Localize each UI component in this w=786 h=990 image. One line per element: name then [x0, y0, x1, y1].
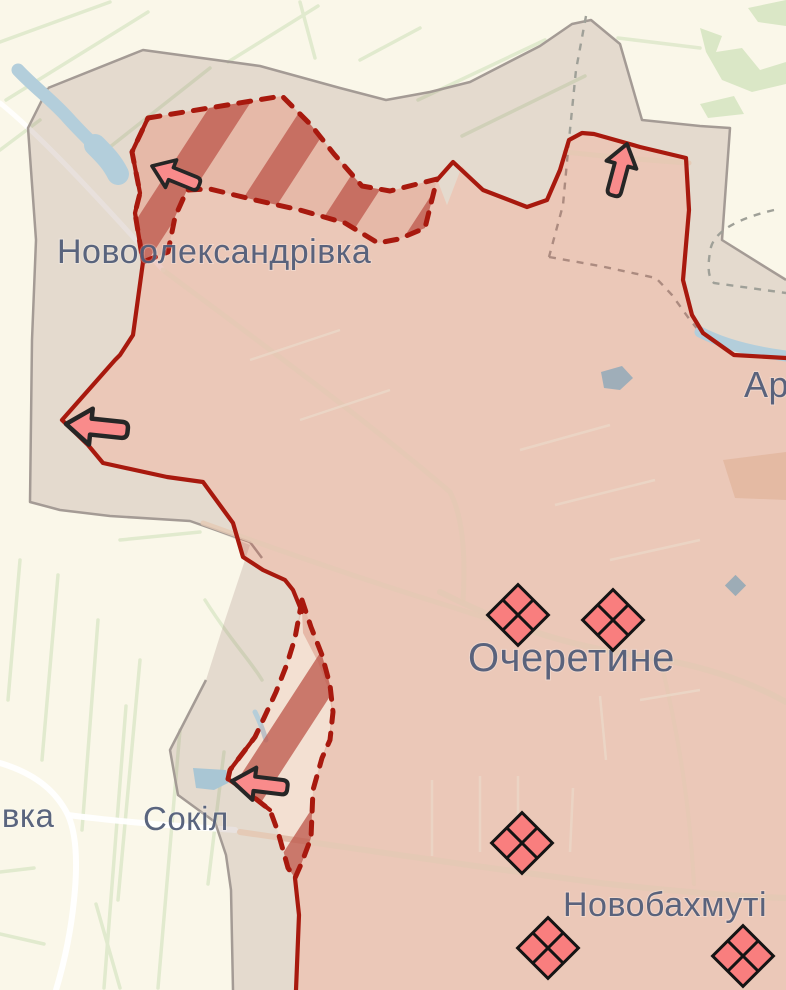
label-sokil: Сокіл	[143, 800, 229, 837]
frontline-map: Новоолександрівка Очеретине Сокіл івка Н…	[0, 0, 786, 990]
label-ivka-partial: івка	[0, 797, 55, 834]
map-viewport[interactable]: Новоолександрівка Очеретине Сокіл івка Н…	[0, 0, 786, 990]
label-ocheretyne: Очеретине	[468, 636, 675, 680]
label-ar-partial: Ар	[744, 364, 786, 405]
label-novooleksandrivka: Новоолександрівка	[57, 233, 371, 271]
label-novobakhmutivka-partial: Новобахмуті	[563, 886, 767, 924]
